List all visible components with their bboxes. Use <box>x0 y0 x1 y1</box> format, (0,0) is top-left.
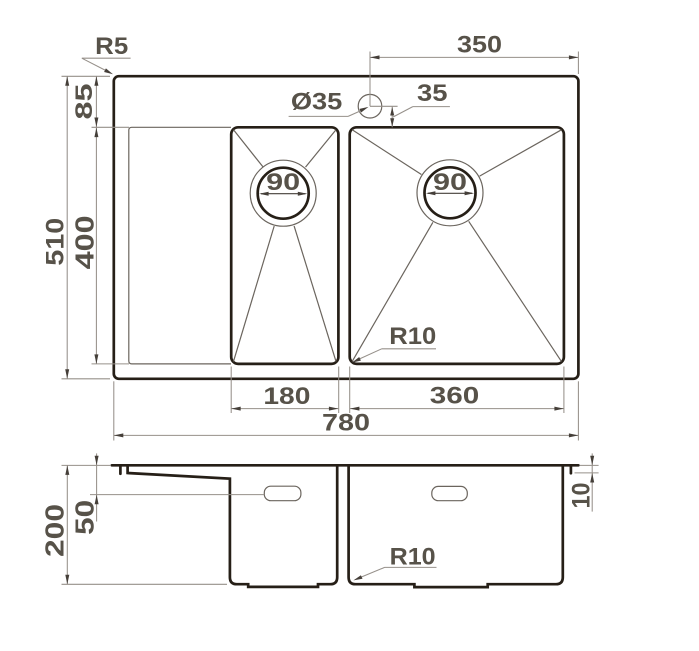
svg-text:10: 10 <box>567 483 595 509</box>
svg-text:200: 200 <box>40 504 70 557</box>
svg-text:35: 35 <box>417 80 448 107</box>
svg-text:R10: R10 <box>390 543 436 570</box>
svg-text:Ø35: Ø35 <box>291 89 343 116</box>
svg-text:90: 90 <box>433 169 467 196</box>
svg-text:510: 510 <box>42 218 70 266</box>
svg-text:R5: R5 <box>95 33 128 60</box>
svg-text:R10: R10 <box>389 323 436 350</box>
svg-text:90: 90 <box>266 169 300 196</box>
svg-text:180: 180 <box>263 383 310 410</box>
svg-text:350: 350 <box>457 32 502 59</box>
svg-text:50: 50 <box>70 500 100 535</box>
svg-text:400: 400 <box>70 215 100 269</box>
svg-text:360: 360 <box>430 383 480 410</box>
svg-text:780: 780 <box>322 409 370 436</box>
svg-text:85: 85 <box>71 84 98 120</box>
